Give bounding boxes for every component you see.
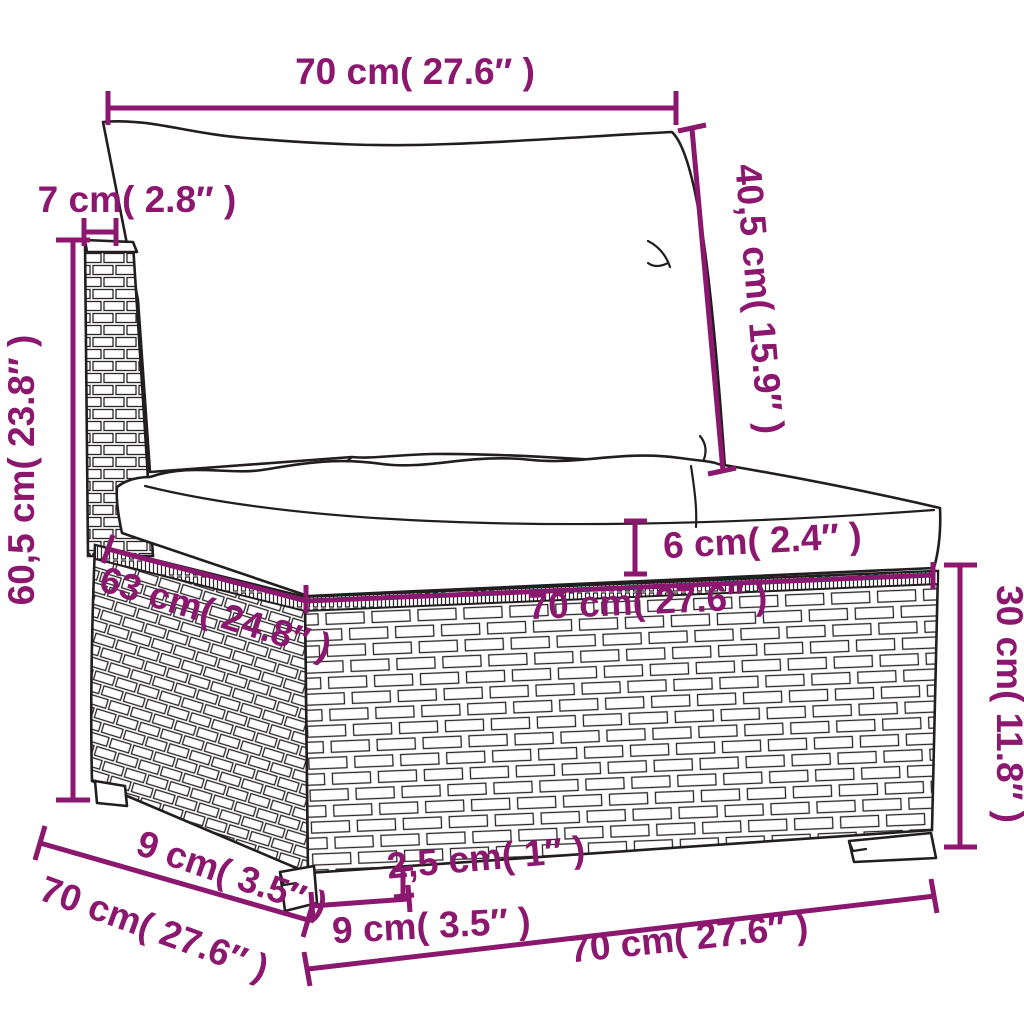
dim-label-back-frame-thickness: 7 cm( 2.8″ ) (38, 179, 237, 220)
dim-back-cushion-width: 70 cm( 27.6″ ) (108, 51, 676, 125)
diagram-canvas: 70 cm( 27.6″ ) 40,5 cm( 15.9″ ) 7 cm( 2.… (0, 0, 1024, 1024)
furniture-dimension-diagram: 70 cm( 27.6″ ) 40,5 cm( 15.9″ ) 7 cm( 2.… (0, 0, 1024, 1024)
front-right-leg (849, 833, 936, 862)
dim-label-front-leg-width: 9 cm( 3.5″ ) (331, 900, 532, 951)
dim-base-height: 30 cm( 11.8″ ) (944, 565, 1024, 847)
dim-label-total-width: 70 cm( 27.6″ ) (567, 905, 810, 971)
back-cushion (103, 121, 725, 472)
dim-total-height: 60,5 cm( 23.8″ ) (1, 240, 90, 800)
dim-front-leg-width: 9 cm( 3.5″ ) (311, 885, 532, 951)
dim-label-back-cushion-width: 70 cm( 27.6″ ) (295, 51, 535, 92)
dim-label-back-cushion-height: 40,5 cm( 15.9″ ) (727, 162, 791, 435)
dim-label-base-height: 30 cm( 11.8″ ) (989, 585, 1024, 823)
back-frame-top-cap (85, 240, 137, 252)
dim-label-total-height: 60,5 cm( 23.8″ ) (1, 335, 42, 606)
side-leg (95, 781, 127, 806)
